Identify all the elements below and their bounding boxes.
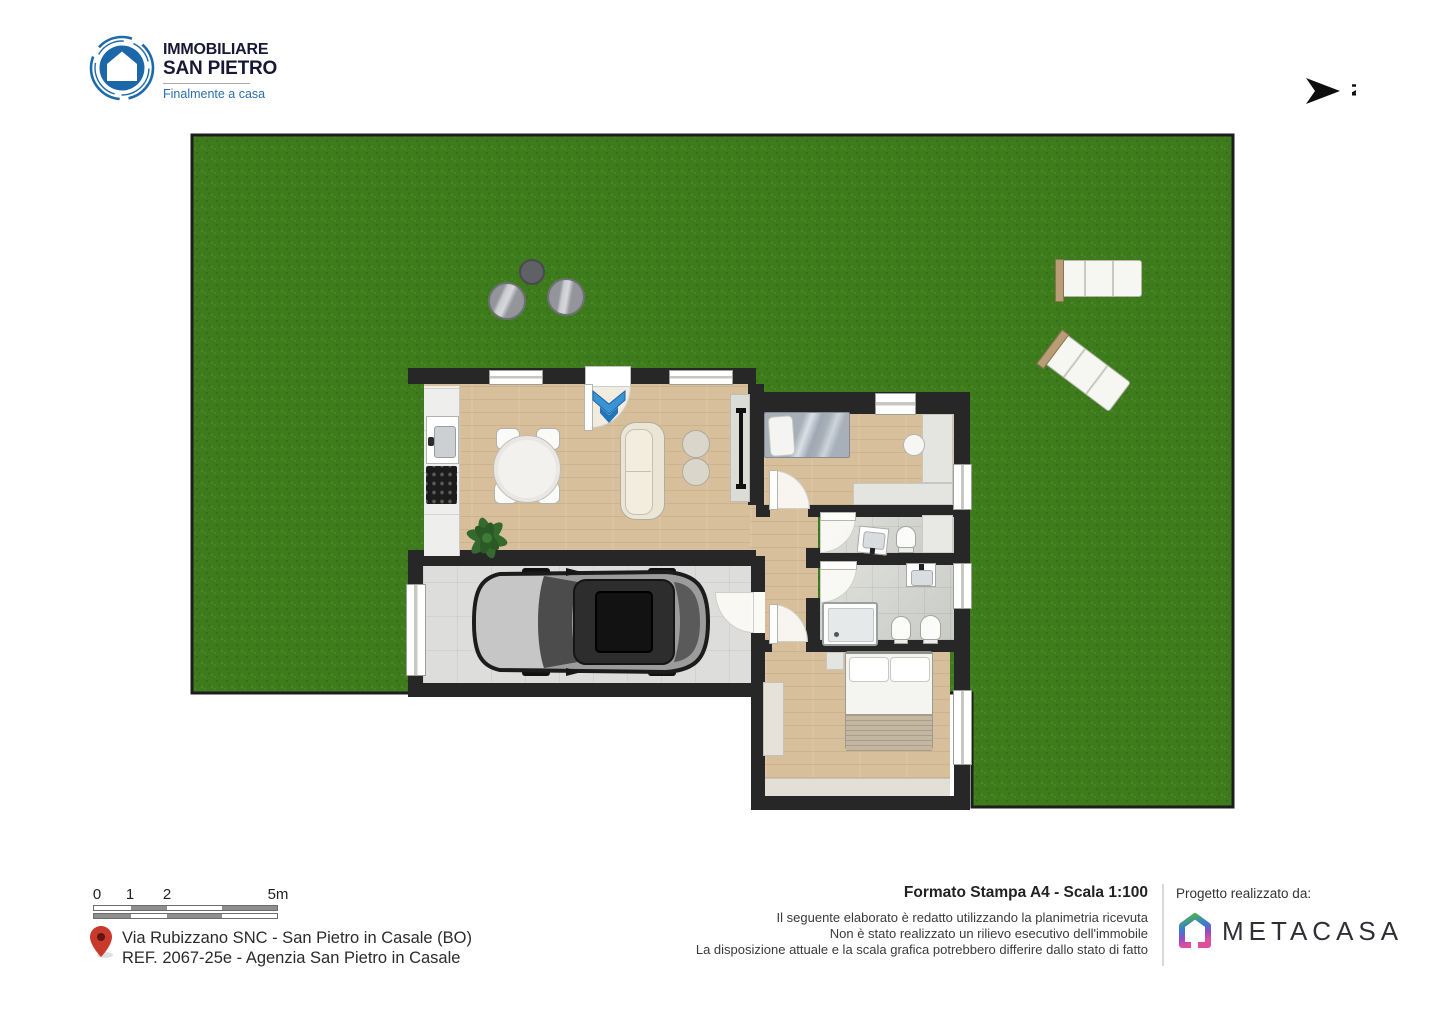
faucet	[870, 548, 876, 554]
wc-cabinet	[922, 515, 953, 553]
disclaimer-line1: Il seguente elaborato è redatto utilizza…	[628, 910, 1148, 926]
pillow	[890, 657, 930, 682]
shower-drain	[834, 632, 839, 637]
footer-divider	[1162, 884, 1164, 966]
address-line2: REF. 2067-25e - Agenzia San Pietro in Ca…	[122, 949, 472, 969]
scale-bar-rows	[93, 905, 278, 919]
sofa	[620, 422, 665, 520]
window	[669, 370, 733, 385]
garden-stool	[488, 282, 526, 320]
sofa-seam	[626, 471, 651, 472]
wall-segment	[751, 796, 970, 810]
address-line1: Via Rubizzano SNC - San Pietro in Casale…	[122, 929, 472, 949]
disclaimer-line2: Non è stato realizzato un rilievo esecut…	[628, 926, 1148, 942]
pillow	[768, 415, 796, 457]
pillow	[849, 657, 889, 682]
toilet-tank	[923, 639, 938, 644]
lounger-frame	[1055, 259, 1064, 302]
credits-label: Progetto realizzato da:	[1176, 886, 1311, 901]
toilet-tank	[898, 547, 914, 553]
nightstand	[826, 652, 844, 670]
sliding-door-cap	[736, 484, 746, 489]
pouf	[682, 458, 710, 486]
bidet	[891, 616, 911, 640]
door-leaf	[769, 470, 778, 510]
map-pin-icon	[90, 926, 114, 960]
floorplan-page: IMMOBILIARE SAN PIETRO Finalmente a casa…	[0, 0, 1440, 1018]
single-bed	[764, 412, 850, 458]
desk-chair	[903, 434, 925, 456]
blanket	[846, 714, 932, 751]
door-leaf	[820, 561, 857, 570]
sink-faucet	[428, 437, 434, 446]
window	[953, 563, 972, 609]
window	[875, 393, 916, 415]
faucet	[919, 564, 924, 570]
scale-label-2: 2	[163, 886, 171, 903]
wall-segment	[408, 550, 756, 566]
address-block: Via Rubizzano SNC - San Pietro in Casale…	[122, 929, 472, 968]
garden-side-table	[519, 259, 545, 285]
scale-label-5m: 5m	[268, 886, 289, 903]
garage-door	[406, 584, 426, 676]
print-info-block: Formato Stampa A4 - Scala 1:100 Il segue…	[628, 884, 1148, 958]
disclaimer-line3: La disposizione attuale e la scala grafi…	[628, 942, 1148, 958]
wall-segment	[751, 556, 765, 592]
washbasin	[906, 563, 936, 587]
toilet	[896, 526, 916, 548]
door-leaf	[820, 512, 856, 521]
window	[953, 690, 972, 765]
wardrobe	[763, 682, 784, 756]
bidet-base	[894, 639, 908, 644]
wall-segment	[408, 683, 772, 697]
plant	[464, 514, 510, 562]
car	[470, 566, 712, 678]
scale-label-0: 0	[93, 886, 101, 903]
kitchen-sink	[426, 416, 459, 464]
scale-label-1: 1	[126, 886, 134, 903]
dining-table	[493, 435, 561, 503]
window	[953, 464, 972, 510]
sofa-cushions	[625, 429, 653, 515]
wall-segment	[756, 392, 970, 414]
door-leaf	[769, 604, 778, 644]
washbasin	[857, 526, 890, 556]
metacasa-wordmark: METACASA	[1222, 916, 1403, 947]
toilet	[920, 615, 941, 640]
pouf	[682, 430, 710, 458]
basin	[911, 570, 933, 586]
double-bed	[845, 651, 933, 750]
scale-bar: 0 1 2 5m	[93, 886, 293, 918]
desk	[922, 414, 953, 483]
sink-basin	[434, 426, 456, 458]
print-format-title: Formato Stampa A4 - Scala 1:100	[628, 884, 1148, 902]
shower	[822, 602, 878, 646]
kitchen-cooktop	[426, 466, 457, 504]
wall-segment	[806, 548, 820, 568]
sliding-door-leaf	[739, 412, 743, 486]
entrance-arrow-icon	[592, 390, 626, 427]
window	[489, 370, 543, 385]
sun-lounger	[1058, 260, 1142, 297]
sliding-door-cap	[736, 408, 746, 413]
dresser	[853, 483, 953, 505]
garden-stool	[547, 278, 585, 316]
wall-segment	[756, 505, 770, 517]
metacasa-logo-icon	[1176, 912, 1214, 950]
